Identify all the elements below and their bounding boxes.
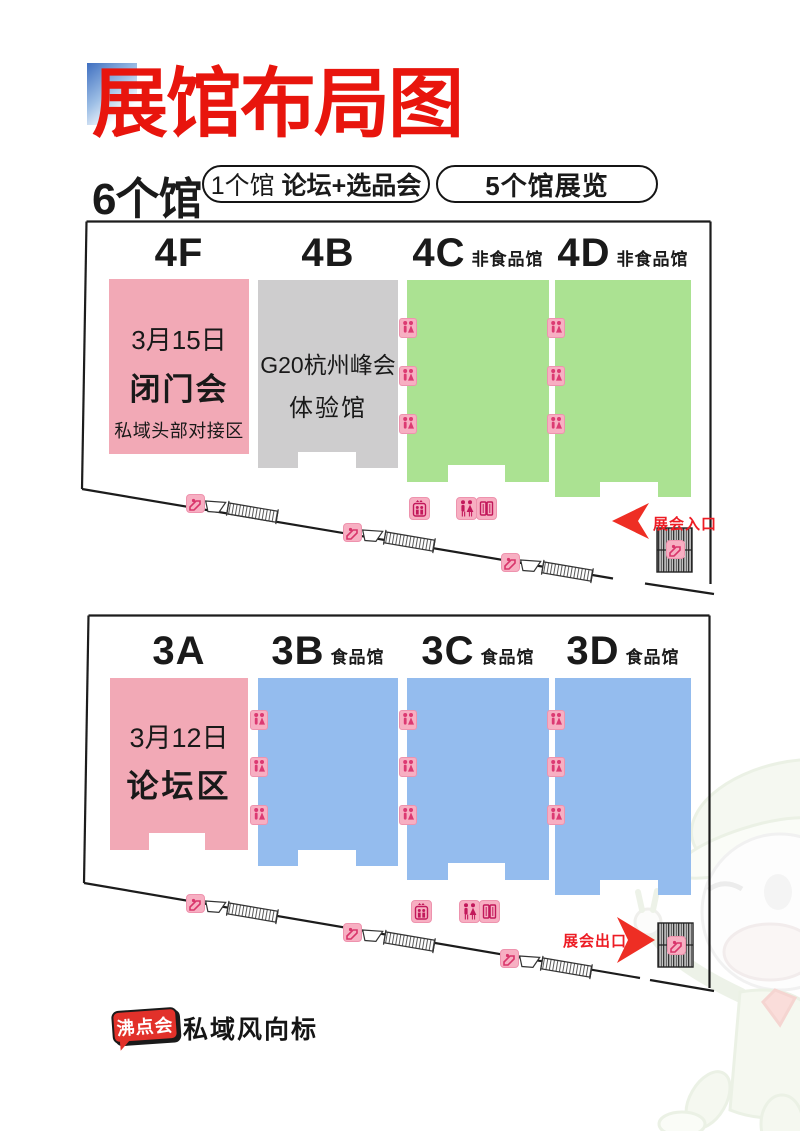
restroom-mini-icon	[250, 710, 268, 730]
hall-id-4f: 4F	[155, 233, 204, 273]
hall-header-3d: 3D 食品馆	[555, 631, 691, 671]
hall-4f-label: 3月15日 闭门会 私域头部对接区	[109, 320, 249, 443]
hall-4c-block	[407, 280, 549, 482]
escalator-run-upper-1	[204, 497, 278, 524]
hall-id-4c: 4C	[412, 233, 465, 273]
restroom-mini-icon	[399, 805, 417, 825]
hall-tag-4c: 非食品馆	[472, 245, 544, 270]
brand-badge-text: 沸点会	[116, 1011, 175, 1041]
escalator-icon	[343, 923, 362, 942]
hall-header-3a: 3A	[110, 631, 248, 671]
restroom-mini-icon	[547, 710, 565, 730]
restroom-mini-icon	[399, 710, 417, 730]
escalator-run-lower-3	[518, 952, 592, 979]
escalator-icon	[186, 894, 205, 913]
pill-forum-hall: 1个馆 论坛+选品会	[202, 165, 430, 203]
hall-3a-label: 3月12日 论坛区	[110, 716, 248, 807]
escalator-icon	[186, 494, 205, 513]
halls-total-label: 6个馆	[92, 163, 201, 227]
escalator-icon	[501, 553, 520, 572]
brand-slogan: 私域风向标	[183, 1010, 318, 1046]
restroom-mini-icon	[547, 757, 565, 777]
escalator-icon	[667, 936, 686, 955]
hall-id-4b: 4B	[301, 233, 354, 273]
hall-header-4b: 4B	[258, 233, 398, 273]
entrance-arrow	[612, 503, 649, 539]
restroom-mini-icon	[547, 414, 565, 434]
hall-3c-block	[407, 678, 549, 880]
escalator-run-upper-3	[519, 556, 593, 583]
door-icon	[479, 900, 500, 923]
hall-header-3c: 3C 食品馆	[407, 631, 549, 671]
restroom-mini-icon	[250, 805, 268, 825]
hall-id-4d: 4D	[557, 233, 610, 273]
hall-4b-label: G20杭州峰会 体验馆	[256, 346, 400, 423]
escalator-icon	[343, 523, 362, 542]
escalator-icon	[500, 949, 519, 968]
restroom-mini-icon	[547, 805, 565, 825]
restroom-mini-icon	[399, 757, 417, 777]
door-icon	[476, 497, 497, 520]
restroom-icon	[459, 900, 480, 923]
pill2-label: 5个馆展览	[485, 166, 608, 203]
hall-header-4d: 4D 非食品馆	[555, 233, 691, 273]
pill-exhibit-halls: 5个馆展览	[436, 165, 658, 203]
restroom-icon	[456, 497, 477, 520]
hall-3a-date: 3月12日	[129, 716, 228, 755]
hall-3a-title: 论坛区	[126, 761, 231, 807]
hall-3b-block	[258, 678, 398, 866]
entrance-label: 展会入口	[653, 513, 717, 534]
hall-tag-3b: 食品馆	[331, 643, 385, 668]
hall-4b-line2: 体验馆	[289, 388, 367, 423]
hall-id-3d: 3D	[566, 631, 619, 671]
hall-3d-block	[555, 678, 691, 895]
hall-id-3a: 3A	[152, 631, 205, 671]
pill1-prefix: 1个馆	[211, 166, 275, 202]
restroom-mini-icon	[399, 318, 417, 338]
restroom-mini-icon	[399, 414, 417, 434]
hall-tag-3c: 食品馆	[481, 643, 535, 668]
escalator-icon	[666, 540, 685, 559]
restroom-mini-icon	[250, 757, 268, 777]
hall-id-3b: 3B	[271, 631, 324, 671]
hall-4b-line1: G20杭州峰会	[260, 346, 395, 380]
hall-header-4c: 4C 非食品馆	[407, 233, 549, 273]
hall-4f-title: 闭门会	[130, 364, 229, 409]
escalator-run-upper-2	[361, 526, 435, 553]
exhibition-layout-poster: 展馆布局图 6个馆 1个馆 论坛+选品会 5个馆展览 4F 4B 4C 非食品馆…	[0, 0, 800, 1131]
hall-4d-block	[555, 280, 691, 497]
escalator-run-lower-2	[361, 926, 435, 953]
hall-header-3b: 3B 食品馆	[258, 631, 398, 671]
hall-4f-date: 3月15日	[131, 320, 226, 357]
elevator-icon	[409, 497, 430, 520]
exit-label: 展会出口	[563, 930, 627, 951]
elevator-icon	[411, 900, 432, 923]
escalator-run-lower-1	[204, 897, 278, 924]
hall-4f-subtitle: 私域头部对接区	[114, 417, 244, 443]
hall-tag-4d: 非食品馆	[617, 245, 689, 270]
hall-header-4f: 4F	[109, 233, 249, 273]
restroom-mini-icon	[399, 366, 417, 386]
hall-id-3c: 3C	[421, 631, 474, 671]
page-title: 展馆布局图	[92, 64, 552, 144]
brand-badge: 沸点会	[111, 1007, 179, 1045]
restroom-mini-icon	[547, 318, 565, 338]
restroom-mini-icon	[547, 366, 565, 386]
pill1-main: 论坛+选品会	[282, 166, 422, 202]
hall-tag-3d: 食品馆	[626, 643, 680, 668]
